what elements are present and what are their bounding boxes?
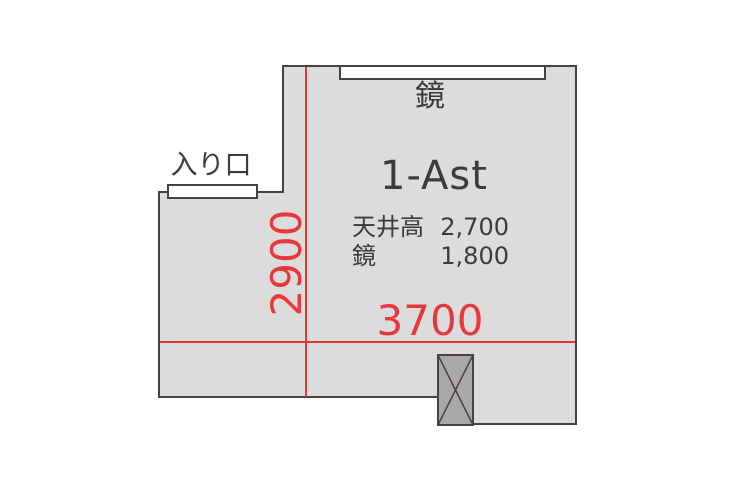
spec-value: 2,700 [440, 213, 509, 242]
room-specs: 天井高 2,700 鏡 1,800 [352, 213, 509, 271]
entrance-door-bar [168, 185, 257, 198]
mirror-bar [340, 66, 545, 79]
room-id: 1-Ast [334, 156, 534, 196]
entrance-label: 入り口 [151, 152, 271, 179]
pillar [438, 355, 473, 425]
mirror-label: 鏡 [400, 82, 460, 112]
spec-row-mirror-length: 鏡 1,800 [352, 242, 509, 271]
dimension-depth-label: 2900 [265, 183, 309, 343]
spec-value: 1,800 [440, 242, 509, 271]
dimension-width-label: 3700 [350, 300, 510, 342]
spec-row-ceiling-height: 天井高 2,700 [352, 213, 509, 242]
spec-label: 天井高 [352, 213, 424, 242]
spec-label: 鏡 [352, 242, 376, 271]
floor-plan: 鏡 入り口 1-Ast 天井高 2,700 鏡 1,800 3700 2900 [0, 0, 750, 498]
